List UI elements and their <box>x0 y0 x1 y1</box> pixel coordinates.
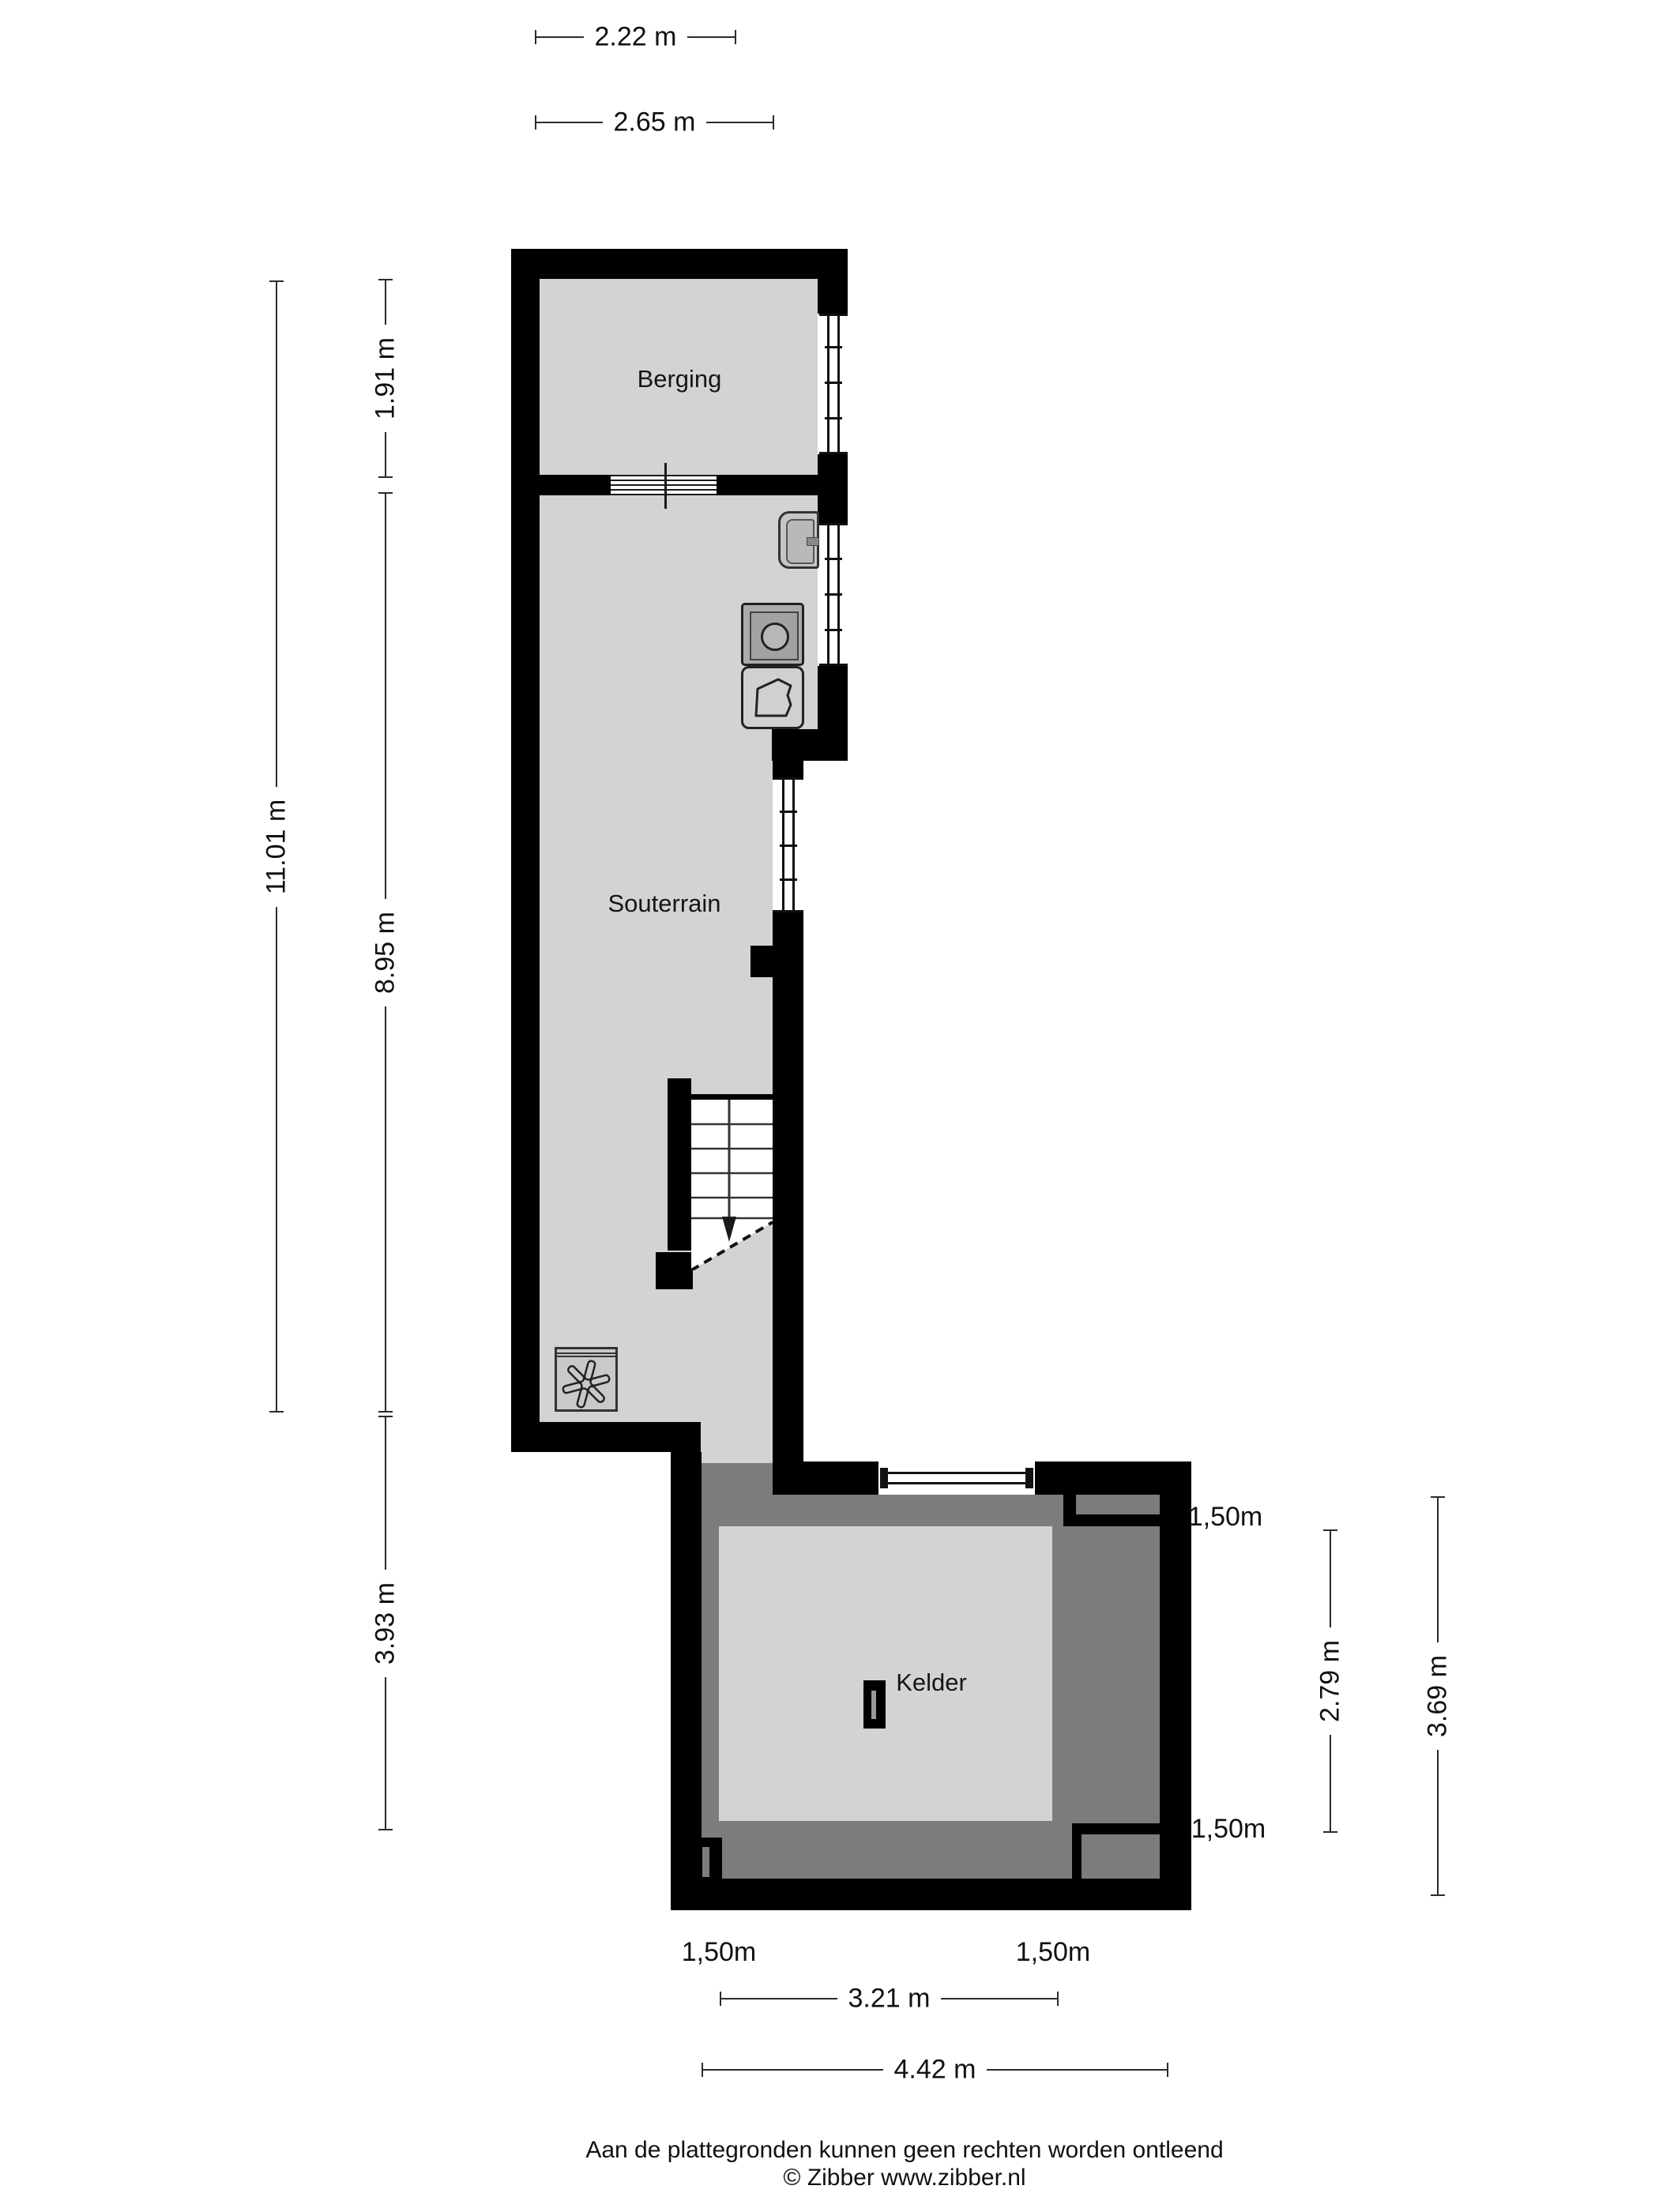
wall-left <box>511 249 540 1452</box>
recess-bottomright-horizontal <box>1072 1823 1167 1834</box>
kelder-wall-bottom <box>671 1879 1191 1910</box>
sink-icon <box>778 511 819 569</box>
dim-left-souterrain: 8.95 m <box>377 492 394 1413</box>
footer-credit: © Zibber www.zibber.nl <box>470 2165 1339 2191</box>
wall-right-narrow <box>773 761 803 777</box>
label-bottom-right-150: 1,50m <box>1010 1937 1097 1968</box>
berging-window-icon <box>819 314 848 454</box>
wall-right-long <box>773 912 803 1493</box>
dim-left-kelder-label: 3.93 m <box>369 1570 403 1677</box>
dim-bottom-outer: 4.42 m <box>702 2061 1168 2078</box>
recess-bottomright-inset <box>1082 1834 1160 1879</box>
dim-left-souterrain-label: 8.95 m <box>369 899 403 1006</box>
berging-door-icon <box>611 475 717 495</box>
wall-top <box>511 249 848 279</box>
souterrain-window-lower-icon <box>773 777 803 912</box>
dim-top-outer: 2.65 m <box>535 114 774 131</box>
footer-disclaimer: Aan de plattegronden kunnen geen rechten… <box>470 2137 1339 2164</box>
dim-bottom-inner-label: 3.21 m <box>837 1982 942 2016</box>
souterrain-floor-lower <box>540 729 773 1422</box>
wall-pier <box>750 946 774 977</box>
label-right-top-150: 1,50m <box>1182 1502 1269 1533</box>
notch-bottomleft-inset <box>702 1847 709 1877</box>
souterrain-bottom-wall <box>511 1422 701 1452</box>
dim-left-total: 11.01 m <box>268 280 285 1413</box>
kelder-wall-left <box>671 1452 702 1910</box>
stairs-top-edge <box>691 1094 773 1100</box>
washing-machine-icon <box>741 603 804 666</box>
berging-bottom-wall-left <box>540 475 611 495</box>
berging-label: Berging <box>600 365 758 393</box>
staircase <box>691 1100 773 1270</box>
recess-topright-inset <box>1076 1495 1160 1514</box>
floor-plan: Berging Souterrain Kelder 2.22 m 2.65 m … <box>0 0 1659 2212</box>
dim-right-kelder-outer: 3.69 m <box>1429 1496 1446 1896</box>
ventilation-fan-icon <box>555 1347 618 1412</box>
kelder-label: Kelder <box>852 1668 1010 1697</box>
souterrain-floor-strip <box>701 1422 773 1463</box>
wall-right-berging-upper <box>818 249 848 314</box>
dim-left-berging: 1.91 m <box>377 279 394 478</box>
dim-top-inner-label: 2.22 m <box>584 21 688 55</box>
dim-bottom-outer-label: 4.42 m <box>883 2053 987 2087</box>
dim-top-outer-label: 2.65 m <box>603 106 707 140</box>
recess-topright-horizontal <box>1063 1514 1167 1526</box>
dim-right-kelder-outer-label: 3.69 m <box>1421 1642 1455 1750</box>
stairs-left-wall <box>668 1078 691 1251</box>
kelder-window-icon <box>878 1461 1035 1495</box>
souterrain-label: Souterrain <box>566 890 763 918</box>
wall-right-berging-lower <box>818 454 848 523</box>
label-bottom-left-150: 1,50m <box>675 1937 762 1968</box>
kelder-wall-top-left <box>773 1461 878 1495</box>
dim-right-kelder-inner: 2.79 m <box>1322 1529 1339 1833</box>
dim-left-kelder: 3.93 m <box>377 1416 394 1830</box>
dim-right-kelder-inner-label: 2.79 m <box>1314 1627 1348 1735</box>
stairs-left-block <box>656 1252 693 1289</box>
wall-step <box>772 729 848 761</box>
souterrain-window-upper-icon <box>819 523 848 666</box>
wall-right-souterrain <box>818 666 848 731</box>
label-right-bottom-150: 1,50m <box>1185 1814 1272 1845</box>
dim-bottom-inner: 3.21 m <box>720 1990 1059 2007</box>
recess-bottomright-vertical <box>1072 1823 1082 1880</box>
dim-left-berging-label: 1.91 m <box>369 325 403 432</box>
dim-left-total-label: 11.01 m <box>260 786 294 906</box>
berging-door-pivot-line <box>664 463 667 509</box>
dim-top-inner: 2.22 m <box>535 28 736 46</box>
berging-bottom-wall-right <box>717 475 818 495</box>
laundry-basket-icon <box>741 666 804 729</box>
